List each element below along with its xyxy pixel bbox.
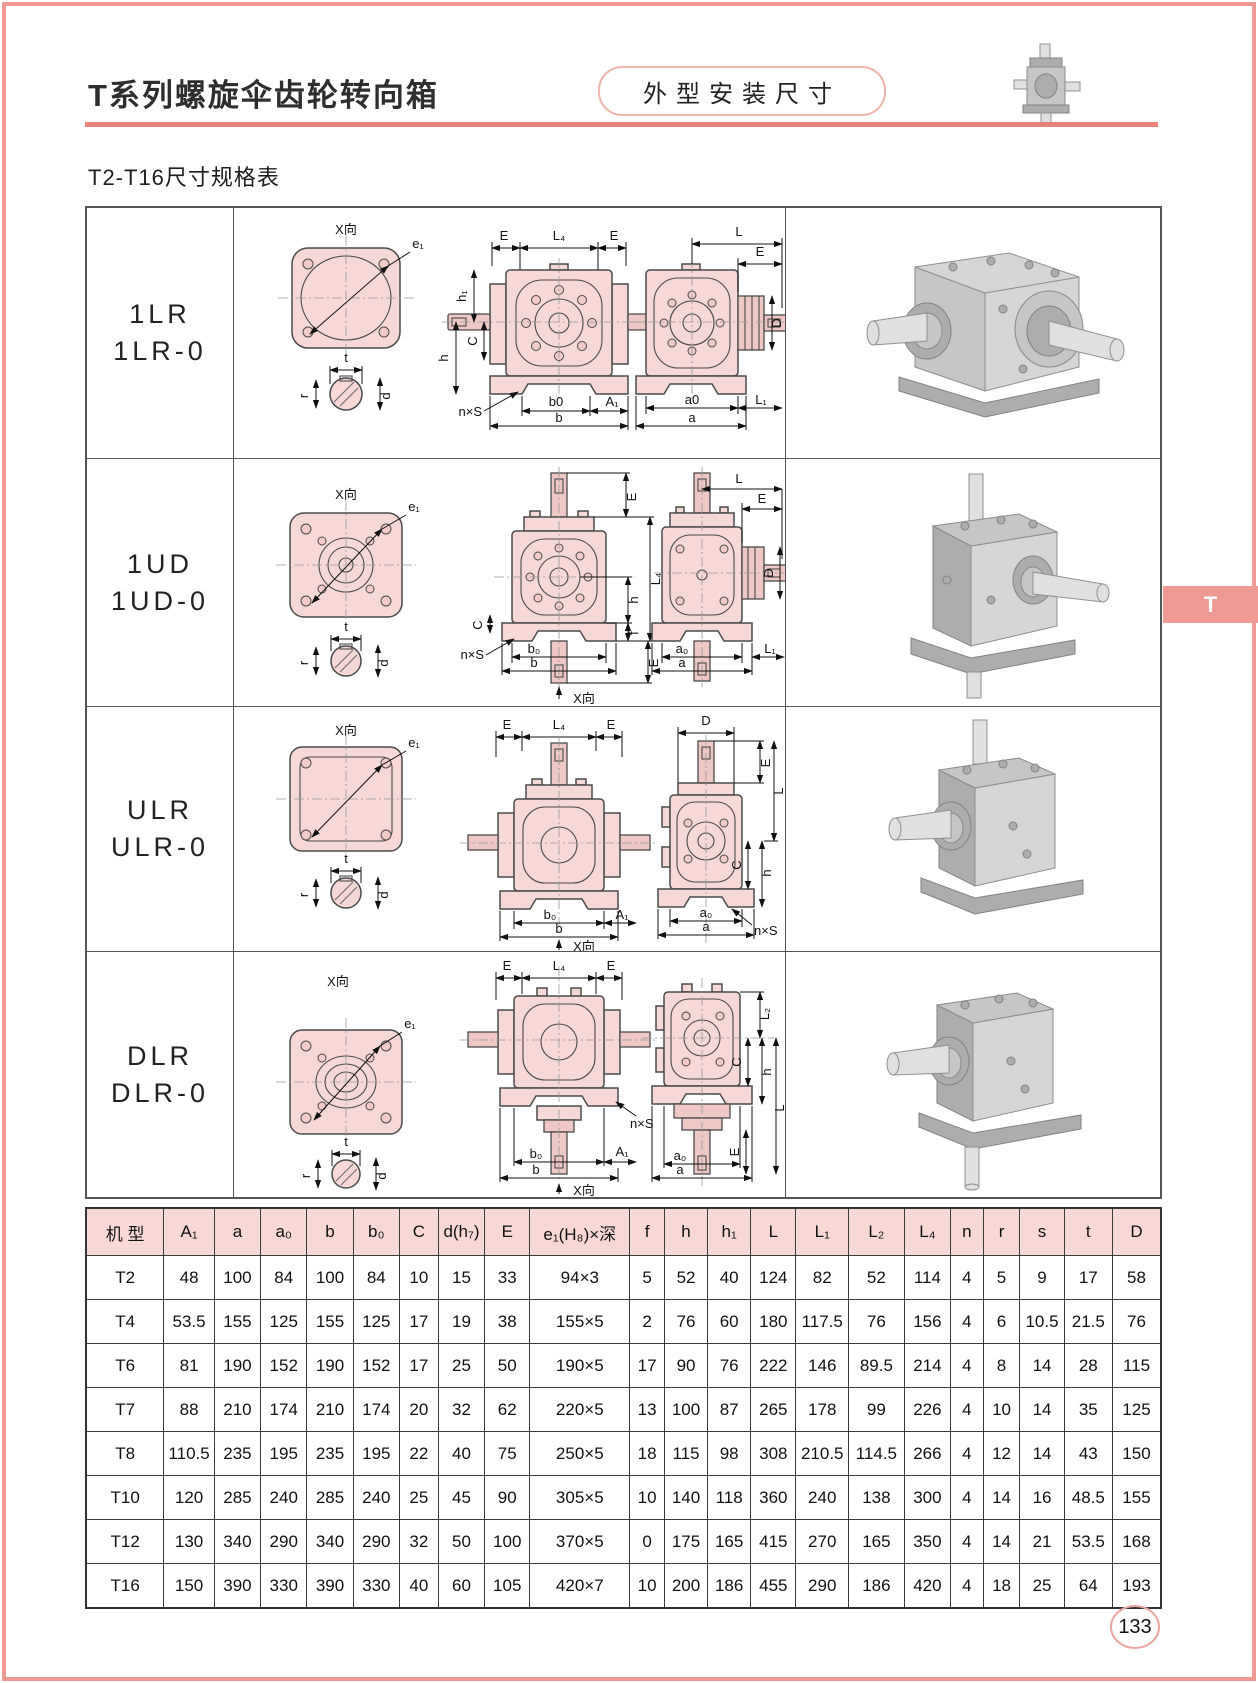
front-view: E L₄ E b₀ A₁ <box>460 717 658 952</box>
spec-cell: 58 <box>1112 1256 1161 1300</box>
dim-label-L: L <box>735 224 742 239</box>
spec-cell: 330 <box>353 1564 399 1609</box>
photo-cell-dlr <box>786 952 1160 1197</box>
dim-label-h: h <box>759 1068 774 1075</box>
spec-header-cell: d(h₇) <box>438 1208 484 1256</box>
spec-cell: 250×5 <box>530 1432 630 1476</box>
dim-label-L2: L₂ <box>757 1008 772 1020</box>
spec-row: T2 48 100 84 100 84 10 15 33 94×3 5 52 4… <box>86 1256 1161 1300</box>
dim-label-b0: b0 <box>549 394 563 409</box>
spec-cell: 0 <box>630 1520 665 1564</box>
model-name: ULR <box>127 795 193 826</box>
spec-cell: 14 <box>1020 1388 1064 1432</box>
gearbox-photo-1lr <box>787 209 1160 458</box>
dim-label-L4: L₄ <box>648 573 663 586</box>
gearbox-thumbnail-image <box>1012 40 1082 128</box>
technical-drawing-dlr: X向 e₁ <box>234 952 786 1197</box>
spec-cell: 305×5 <box>530 1476 630 1520</box>
spec-cell: 52 <box>664 1256 707 1300</box>
spec-cell: 82 <box>796 1256 849 1300</box>
spec-header-cell: 机 型 <box>86 1208 164 1256</box>
dim-label-t: t <box>344 1134 348 1149</box>
dim-label-D: D <box>761 568 776 577</box>
spec-cell: 14 <box>1020 1432 1064 1476</box>
spec-cell: 214 <box>904 1344 950 1388</box>
spec-cell: 155 <box>214 1300 260 1344</box>
spec-cell: 25 <box>1020 1564 1064 1609</box>
model-name: DLR <box>127 1041 193 1072</box>
gearbox-photo-dlr <box>787 953 1160 1196</box>
spec-header-cell: b₀ <box>353 1208 399 1256</box>
spec-cell: 88 <box>164 1388 214 1432</box>
dim-label-nxs: n×S <box>461 647 485 662</box>
spec-cell: 13 <box>630 1388 665 1432</box>
spec-cell: 152 <box>353 1344 399 1388</box>
spec-cell: 110.5 <box>164 1432 214 1476</box>
side-view: D E L <box>658 713 786 943</box>
technical-drawing-ulr: X向 e₁ t r <box>234 707 786 952</box>
spec-cell: 220×5 <box>530 1388 630 1432</box>
spec-cell: 76 <box>849 1300 905 1344</box>
x-direction-label: X向 <box>573 691 595 706</box>
spec-row: T6 81 190 152 190 152 17 25 50 190×5 17 … <box>86 1344 1161 1388</box>
spec-cell: 350 <box>904 1520 950 1564</box>
dim-label-a0: a₀ <box>700 905 713 920</box>
spec-cell-model: T12 <box>86 1520 164 1564</box>
spec-cell: 290 <box>261 1520 307 1564</box>
side-view: L E D a₀ a L₁ <box>652 467 786 687</box>
x-view-flange: X向 e₁ <box>276 723 420 863</box>
spec-cell: 152 <box>261 1344 307 1388</box>
spec-cell: 4 <box>951 1256 984 1300</box>
spec-cell: 100 <box>485 1520 530 1564</box>
spec-cell: 150 <box>1112 1432 1161 1476</box>
dim-label-r: r <box>298 1173 313 1178</box>
spec-cell: 21.5 <box>1064 1300 1112 1344</box>
photo-cell-ulr <box>786 707 1160 952</box>
spec-cell: 60 <box>438 1564 484 1609</box>
spec-cell: 76 <box>664 1300 707 1344</box>
spec-header-cell: L₂ <box>849 1208 905 1256</box>
spec-cell: 168 <box>1112 1520 1161 1564</box>
page-number: 133 <box>1110 1605 1160 1649</box>
dim-label-C: C <box>470 620 485 629</box>
technical-drawing-1lr: X向 e₁ t r <box>234 208 786 459</box>
spec-cell: 19 <box>438 1300 484 1344</box>
dim-label-L1: L₁ <box>755 392 767 407</box>
dim-label-b0: b₀ <box>528 641 541 656</box>
spec-cell: 210.5 <box>796 1432 849 1476</box>
spec-cell: 45 <box>438 1476 484 1520</box>
dim-label-A1: A₁ <box>605 394 619 409</box>
spec-cell: 308 <box>751 1432 796 1476</box>
spec-cell: 115 <box>664 1432 707 1476</box>
model-name: DLR-0 <box>111 1078 209 1109</box>
spec-cell: 115 <box>1112 1344 1161 1388</box>
dim-label-b: b <box>532 1162 539 1177</box>
spec-cell: 90 <box>664 1344 707 1388</box>
dim-label-e1: e₁ <box>408 499 420 514</box>
dim-label-d: d <box>374 1172 389 1179</box>
spec-cell: 15 <box>438 1256 484 1300</box>
x-view-flange: X向 e₁ <box>278 222 424 360</box>
front-view: E L₄ E n×S <box>460 958 658 1197</box>
model-name: 1LR <box>129 299 191 330</box>
dim-label-e1: e₁ <box>408 735 420 750</box>
spec-cell: 193 <box>1112 1564 1161 1609</box>
header-divider-rule <box>85 122 1158 127</box>
spec-cell: 38 <box>485 1300 530 1344</box>
spec-cell-model: T6 <box>86 1344 164 1388</box>
dim-label-b0: b₀ <box>530 1146 543 1161</box>
spec-cell: 455 <box>751 1564 796 1609</box>
shaft-section: t r d <box>296 851 391 909</box>
spec-row: T4 53.5 155 125 155 125 17 19 38 155×5 2… <box>86 1300 1161 1344</box>
dim-label-nxs: n×S <box>630 1116 654 1131</box>
x-direction-label: X向 <box>335 487 357 502</box>
spec-cell: 370×5 <box>530 1520 630 1564</box>
dim-label-C: C <box>729 1057 744 1066</box>
spec-cell: 290 <box>353 1520 399 1564</box>
spec-row: T12 130 340 290 340 290 32 50 100 370×5 … <box>86 1520 1161 1564</box>
spec-cell: 84 <box>261 1256 307 1300</box>
dim-label-d: d <box>376 659 391 666</box>
spec-cell: 8 <box>983 1344 1020 1388</box>
dim-label-a0: a₀ <box>676 641 689 656</box>
dim-label-nxs: n×S <box>459 404 483 419</box>
dim-label-E: E <box>607 958 616 973</box>
dim-label-a0: a₀ <box>674 1148 687 1163</box>
spec-cell: 43 <box>1064 1432 1112 1476</box>
spec-cell: 18 <box>983 1564 1020 1609</box>
spec-header-cell: a₀ <box>261 1208 307 1256</box>
spec-cell: 138 <box>849 1476 905 1520</box>
spec-cell: 76 <box>1112 1300 1161 1344</box>
spec-cell-model: T16 <box>86 1564 164 1609</box>
spec-cell: 14 <box>983 1520 1020 1564</box>
spec-cell: 222 <box>751 1344 796 1388</box>
spec-cell: 265 <box>751 1388 796 1432</box>
spec-cell: 48.5 <box>1064 1476 1112 1520</box>
spec-cell: 84 <box>353 1256 399 1300</box>
spec-cell: 210 <box>214 1388 260 1432</box>
spec-cell: 175 <box>664 1520 707 1564</box>
spec-cell: 155×5 <box>530 1300 630 1344</box>
spec-cell: 125 <box>1112 1388 1161 1432</box>
spec-header-cell: C <box>399 1208 438 1256</box>
dim-label-E: E <box>758 491 767 506</box>
spec-cell: 17 <box>399 1344 438 1388</box>
spec-header-cell: A₁ <box>164 1208 214 1256</box>
spec-cell: 62 <box>485 1388 530 1432</box>
dim-label-L4: L₄ <box>553 228 566 243</box>
spec-header-cell: h <box>664 1208 707 1256</box>
dim-label-b: b <box>555 410 562 425</box>
spec-cell: 25 <box>438 1344 484 1388</box>
spec-cell-model: T8 <box>86 1432 164 1476</box>
dimension-diagram-table: 1LR 1LR-0 X向 e₁ <box>85 206 1162 1199</box>
spec-cell: 4 <box>951 1432 984 1476</box>
spec-cell: 117.5 <box>796 1300 849 1344</box>
spec-cell: 4 <box>951 1520 984 1564</box>
spec-cell: 99 <box>849 1388 905 1432</box>
spec-cell: 300 <box>904 1476 950 1520</box>
x-direction-label: X向 <box>327 974 349 989</box>
spec-cell: 5 <box>630 1256 665 1300</box>
gearbox-photo-1ud <box>787 460 1160 706</box>
spec-cell: 140 <box>664 1476 707 1520</box>
dim-label-a0: a0 <box>685 392 699 407</box>
spec-cell: 165 <box>849 1520 905 1564</box>
spec-cell: 40 <box>399 1564 438 1609</box>
spec-cell: 174 <box>353 1388 399 1432</box>
spec-cell: 178 <box>796 1388 849 1432</box>
model-name: 1LR-0 <box>113 336 207 367</box>
spec-cell: 200 <box>664 1564 707 1609</box>
dim-label-C: C <box>729 860 744 869</box>
spec-cell: 14 <box>983 1476 1020 1520</box>
spec-cell: 186 <box>849 1564 905 1609</box>
spec-cell: 14 <box>1020 1344 1064 1388</box>
spec-cell: 235 <box>214 1432 260 1476</box>
gearbox-photo-ulr <box>787 708 1160 951</box>
model-name: 1UD-0 <box>111 586 209 617</box>
spec-cell: 4 <box>951 1388 984 1432</box>
spec-cell: 53.5 <box>1064 1520 1112 1564</box>
spec-row: T8 110.5 235 195 235 195 22 40 75 250×5 … <box>86 1432 1161 1476</box>
dim-label-a: a <box>702 919 710 934</box>
spec-cell: 114 <box>904 1256 950 1300</box>
spec-cell: 90 <box>485 1476 530 1520</box>
spec-cell: 12 <box>983 1432 1020 1476</box>
dim-label-b: b <box>530 655 537 670</box>
spec-cell: 60 <box>708 1300 751 1344</box>
spec-cell: 32 <box>438 1388 484 1432</box>
dim-label-E: E <box>756 244 765 259</box>
spec-cell: 186 <box>708 1564 751 1609</box>
spec-cell: 390 <box>214 1564 260 1609</box>
spec-cell: 125 <box>261 1300 307 1344</box>
spec-cell: 125 <box>353 1300 399 1344</box>
spec-row: T10 120 285 240 285 240 25 45 90 305×5 1… <box>86 1476 1161 1520</box>
spec-table: 机 型A₁aa₀bb₀Cd(h₇)Ee₁(H₈)×深fhh₁LL₁L₂L₄nrs… <box>85 1207 1162 1609</box>
spec-cell: 5 <box>983 1256 1020 1300</box>
spec-cell: 290 <box>796 1564 849 1609</box>
dim-label-nxs: n×S <box>754 923 778 938</box>
spec-cell: 22 <box>399 1432 438 1476</box>
dim-label-h: h <box>436 354 451 361</box>
spec-header-cell: f <box>630 1208 665 1256</box>
spec-header-cell: n <box>951 1208 984 1256</box>
spec-cell: 285 <box>214 1476 260 1520</box>
spec-cell: 100 <box>664 1388 707 1432</box>
spec-cell: 156 <box>904 1300 950 1344</box>
spec-cell: 390 <box>307 1564 353 1609</box>
dim-label-e1: e₁ <box>404 1016 416 1031</box>
spec-cell: 235 <box>307 1432 353 1476</box>
spec-cell: 2 <box>630 1300 665 1344</box>
catalog-page: T系列螺旋伞齿轮转向箱 外型安装尺寸 T2-T16尺寸规格表 1LR 1LR-0… <box>0 0 1258 1683</box>
spec-cell: 4 <box>951 1344 984 1388</box>
dim-label-D: D <box>701 713 710 728</box>
spec-cell: 17 <box>1064 1256 1112 1300</box>
spec-header-cell: r <box>983 1208 1020 1256</box>
chapter-tab: T <box>1163 586 1258 623</box>
spec-cell: 89.5 <box>849 1344 905 1388</box>
dim-label-d: d <box>378 392 393 399</box>
x-view-flange: X向 e₁ <box>276 974 416 1146</box>
spec-header-row: 机 型A₁aa₀bb₀Cd(h₇)Ee₁(H₈)×深fhh₁LL₁L₂L₄nrs… <box>86 1208 1161 1256</box>
spec-header-cell: s <box>1020 1208 1064 1256</box>
technical-drawing-1ud: X向 e₁ t <box>234 459 786 707</box>
spec-header-cell: D <box>1112 1208 1161 1256</box>
spec-cell: 190 <box>307 1344 353 1388</box>
drawing-cell-1lr: X向 e₁ t r <box>234 208 786 459</box>
dim-label-f: f <box>626 631 641 635</box>
dim-label-r: r <box>296 393 311 398</box>
spec-cell: 4 <box>951 1476 984 1520</box>
drawing-cell-ulr: X向 e₁ t r <box>234 707 786 952</box>
spec-cell: 100 <box>307 1256 353 1300</box>
spec-header-cell: E <box>485 1208 530 1256</box>
spec-cell: 195 <box>261 1432 307 1476</box>
spec-cell: 420 <box>904 1564 950 1609</box>
dim-label-E: E <box>607 717 616 732</box>
spec-cell: 76 <box>708 1344 751 1388</box>
spec-cell: 130 <box>164 1520 214 1564</box>
model-label-ulr: ULR ULR-0 <box>87 707 234 952</box>
spec-cell: 330 <box>261 1564 307 1609</box>
spec-cell: 20 <box>399 1388 438 1432</box>
dim-label-a: a <box>678 655 686 670</box>
section-label: T2-T16尺寸规格表 <box>88 160 280 192</box>
spec-cell: 100 <box>214 1256 260 1300</box>
spec-table-body: T2 48 100 84 100 84 10 15 33 94×3 5 52 4… <box>86 1256 1161 1609</box>
spec-header-cell: b <box>307 1208 353 1256</box>
shaft-section: t r d <box>296 619 391 677</box>
spec-cell: 124 <box>751 1256 796 1300</box>
dim-label-E: E <box>610 228 619 243</box>
model-name: ULR-0 <box>111 832 209 863</box>
photo-cell-1ud <box>786 459 1160 707</box>
dim-label-t: t <box>344 851 348 866</box>
dim-label-d: d <box>376 891 391 898</box>
dim-label-L: L <box>735 471 742 486</box>
dim-label-A1: A₁ <box>615 1144 629 1159</box>
spec-cell: 155 <box>1112 1476 1161 1520</box>
spec-cell: 120 <box>164 1476 214 1520</box>
spec-cell: 35 <box>1064 1388 1112 1432</box>
spec-cell: 190 <box>214 1344 260 1388</box>
spec-cell: 240 <box>261 1476 307 1520</box>
dim-label-e1: e₁ <box>412 236 424 251</box>
spec-cell: 340 <box>307 1520 353 1564</box>
spec-cell: 25 <box>399 1476 438 1520</box>
model-name: 1UD <box>127 549 193 580</box>
spec-cell: 360 <box>751 1476 796 1520</box>
spec-cell: 10 <box>630 1564 665 1609</box>
spec-cell: 105 <box>485 1564 530 1609</box>
spec-cell: 87 <box>708 1388 751 1432</box>
spec-cell: 17 <box>399 1300 438 1344</box>
dim-label-r: r <box>296 660 311 665</box>
spec-header-cell: e₁(H₈)×深 <box>530 1208 630 1256</box>
x-direction-label: X向 <box>335 222 357 237</box>
spec-cell: 285 <box>307 1476 353 1520</box>
spec-cell: 270 <box>796 1520 849 1564</box>
dim-label-L: L <box>771 787 786 794</box>
spec-cell: 420×7 <box>530 1564 630 1609</box>
dim-label-L4: L₄ <box>553 717 566 732</box>
spec-cell-model: T2 <box>86 1256 164 1300</box>
spec-cell: 40 <box>708 1256 751 1300</box>
spec-cell: 52 <box>849 1256 905 1300</box>
dim-label-a: a <box>676 1162 684 1177</box>
drawing-cell-1ud: X向 e₁ t <box>234 459 786 707</box>
page-title: T系列螺旋伞齿轮转向箱 <box>88 70 439 115</box>
spec-cell: 10 <box>630 1476 665 1520</box>
dim-label-h1: h₁ <box>454 290 469 302</box>
spec-cell: 17 <box>630 1344 665 1388</box>
spec-cell: 4 <box>951 1564 984 1609</box>
side-view: L₂ C h L E a₀ a <box>642 978 786 1188</box>
spec-cell: 240 <box>796 1476 849 1520</box>
dim-label-t: t <box>344 619 348 634</box>
spec-cell: 21 <box>1020 1520 1064 1564</box>
spec-cell: 240 <box>353 1476 399 1520</box>
spec-cell: 16 <box>1020 1476 1064 1520</box>
dim-label-r: r <box>296 892 311 897</box>
spec-cell: 18 <box>630 1432 665 1476</box>
dim-label-h: h <box>759 869 774 876</box>
spec-cell: 50 <box>485 1344 530 1388</box>
dim-label-C: C <box>465 336 480 345</box>
spec-cell: 210 <box>307 1388 353 1432</box>
spec-row: T7 88 210 174 210 174 20 32 62 220×5 13 … <box>86 1388 1161 1432</box>
dim-label-t: t <box>344 350 348 365</box>
dim-label-D: D <box>769 318 784 327</box>
x-view-flange: X向 e₁ <box>276 487 420 629</box>
spec-cell: 174 <box>261 1388 307 1432</box>
spec-header-cell: L <box>751 1208 796 1256</box>
dim-label-b: b <box>555 921 562 936</box>
spec-cell: 180 <box>751 1300 796 1344</box>
dim-label-E: E <box>500 228 509 243</box>
spec-cell: 146 <box>796 1344 849 1388</box>
x-direction-label: X向 <box>573 939 595 952</box>
spec-cell: 155 <box>307 1300 353 1344</box>
spec-cell: 10 <box>983 1388 1020 1432</box>
shaft-section: t r d <box>298 1134 389 1190</box>
spec-cell: 75 <box>485 1432 530 1476</box>
spec-cell: 28 <box>1064 1344 1112 1388</box>
spec-cell: 340 <box>214 1520 260 1564</box>
model-label-dlr: DLR DLR-0 <box>87 952 234 1197</box>
spec-cell: 53.5 <box>164 1300 214 1344</box>
spec-cell: 266 <box>904 1432 950 1476</box>
model-label-1lr: 1LR 1LR-0 <box>87 208 234 459</box>
dim-label-E: E <box>503 958 512 973</box>
dim-label-a: a <box>688 410 696 425</box>
spec-cell: 195 <box>353 1432 399 1476</box>
dim-label-L1: L₁ <box>764 641 776 656</box>
spec-cell: 94×3 <box>530 1256 630 1300</box>
spec-cell: 150 <box>164 1564 214 1609</box>
spec-cell: 81 <box>164 1344 214 1388</box>
dim-label-E: E <box>646 658 661 667</box>
spec-cell: 50 <box>438 1520 484 1564</box>
spec-cell: 10 <box>399 1256 438 1300</box>
